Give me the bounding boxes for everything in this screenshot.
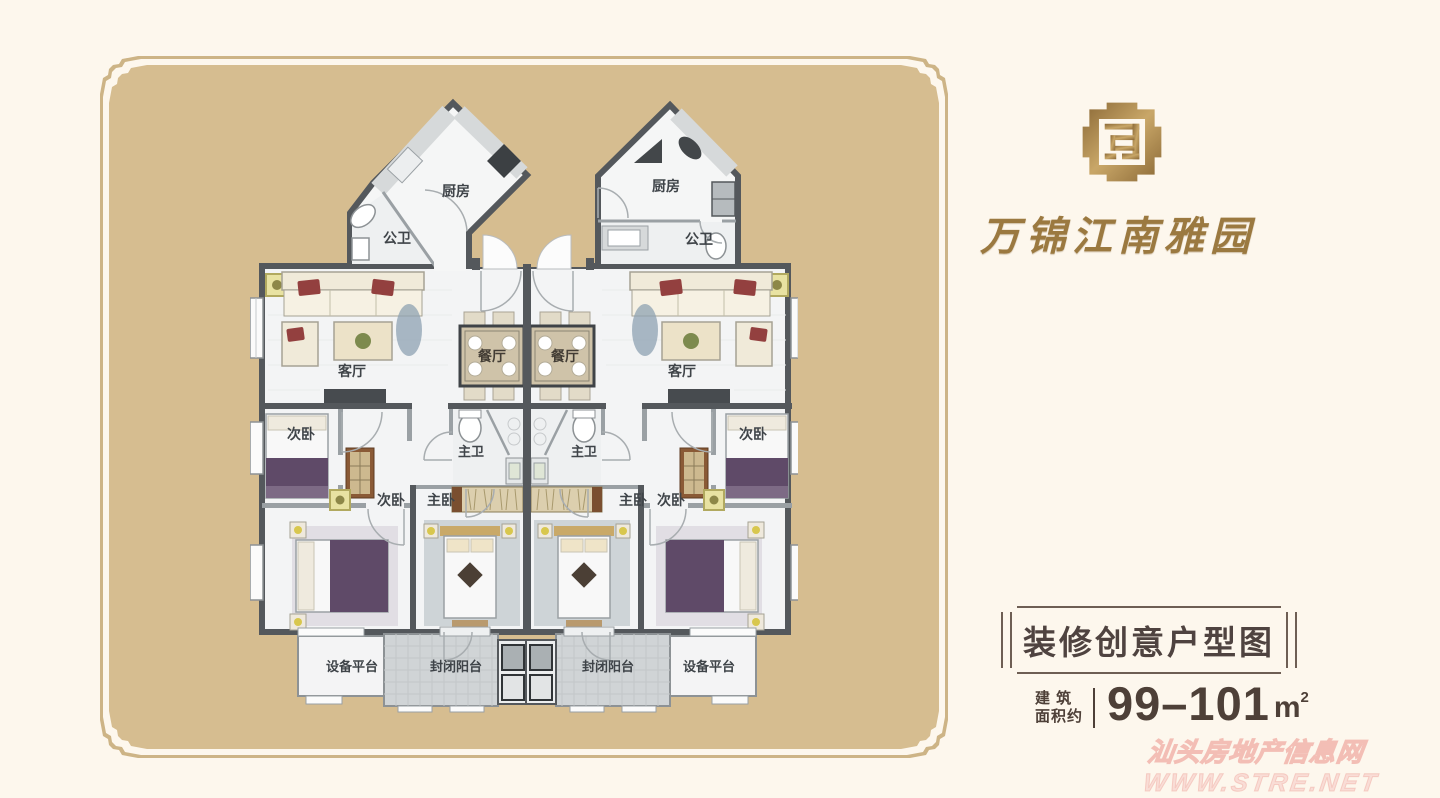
room-label-guest-bath-left: 公卫: [383, 230, 411, 246]
room-label-dining-right: 餐厅: [550, 348, 579, 364]
brand-name: 万锦江南雅园: [950, 204, 1286, 262]
room-label-kitchen-left: 厨房: [442, 183, 470, 199]
sink: [509, 463, 520, 479]
room-label-living-right: 客厅: [667, 363, 696, 379]
tv-cabinet: [324, 389, 386, 403]
room-label-master-bath-left: 主卫: [458, 444, 484, 459]
title-rules: 装修创意户型图: [1017, 606, 1281, 674]
bed-master: [424, 520, 520, 628]
area-number: 99–101: [1107, 682, 1270, 726]
room-label-master-bath-right: 主卫: [571, 444, 597, 459]
plan-title: 装修创意户型图: [1023, 616, 1275, 664]
area-value: 99–101 m 2: [1107, 682, 1309, 734]
area-exponent: 2: [1301, 688, 1309, 708]
room-label-balcony-right: 封闭阳台: [582, 659, 634, 674]
area-label-line1: 建 筑: [1035, 690, 1083, 708]
room-label-living-left: 客厅: [337, 363, 366, 379]
watermark: 汕头房地产信息网 WWW.STRE.NET: [1141, 732, 1386, 798]
center-wall: [523, 264, 531, 632]
room-label-secondary-bedroom-upper-left: 次卧: [287, 426, 315, 442]
watermark-site-url: WWW.STRE.NET: [1141, 769, 1381, 798]
title-double-bar-left: [1001, 612, 1012, 668]
washbasin: [608, 230, 640, 246]
room-label-dining-left: 餐厅: [477, 348, 506, 364]
plant: [396, 304, 422, 356]
room-label-equipment-right: 设备平台: [683, 659, 735, 674]
floorplan-drawing: 厨房 厨房 公卫 公卫 客厅 客厅 餐厅 餐厅 次卧 次卧 主卫 主卫 次卧 次…: [250, 88, 798, 728]
area-label-line2: 面积约: [1035, 708, 1083, 726]
bay-window: [250, 422, 263, 474]
floorplan-poster: { "brand": { "emblem": "wanjin-gold-seal…: [0, 0, 1440, 790]
room-label-equipment-left: 设备平台: [326, 659, 378, 674]
plan-title-box: 装修创意户型图: [1001, 606, 1297, 674]
building-area: 建 筑 面积约 99–101 m 2: [1035, 682, 1309, 734]
title-double-bar-right: [1286, 612, 1297, 668]
area-divider: [1093, 688, 1095, 728]
area-label: 建 筑 面积约: [1035, 690, 1083, 726]
room-label-master-bedroom-right: 主卧: [619, 492, 647, 508]
area-unit: m: [1274, 682, 1301, 734]
watermark-site-name: 汕头房地产信息网: [1145, 732, 1386, 769]
room-label-secondary-bedroom-lower-right: 次卧: [657, 492, 685, 508]
room-label-guest-bath-right: 公卫: [685, 231, 713, 247]
room-label-secondary-bedroom-lower-left: 次卧: [377, 492, 405, 508]
room-label-master-bedroom-left: 主卧: [427, 492, 455, 508]
room-label-secondary-bedroom-upper-right: 次卧: [739, 426, 767, 442]
wardrobe: [452, 487, 523, 512]
bay-window: [250, 545, 263, 600]
room-label-kitchen-right: 厨房: [652, 178, 680, 194]
brand-seal-icon: [1074, 92, 1170, 192]
room-label-balcony-left: 封闭阳台: [430, 659, 482, 674]
